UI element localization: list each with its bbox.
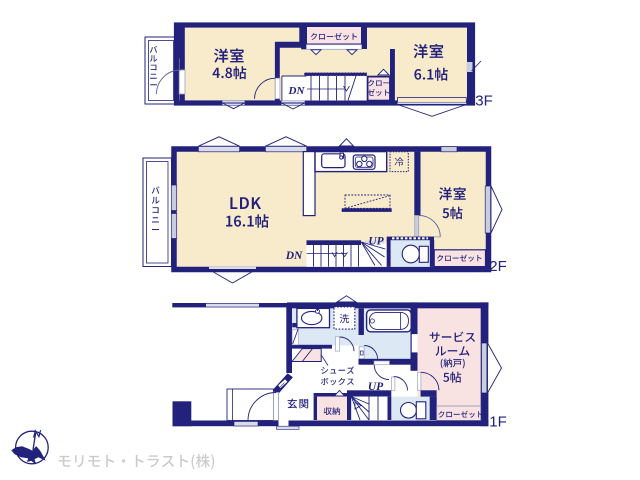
svg-text:2F: 2F xyxy=(489,258,507,275)
svg-text:DN: DN xyxy=(285,250,303,262)
svg-text:UP: UP xyxy=(368,236,384,248)
svg-text:3F: 3F xyxy=(475,93,493,110)
svg-text:1F: 1F xyxy=(489,414,507,431)
svg-text:UP: UP xyxy=(368,381,384,393)
svg-text:DN: DN xyxy=(288,85,306,97)
